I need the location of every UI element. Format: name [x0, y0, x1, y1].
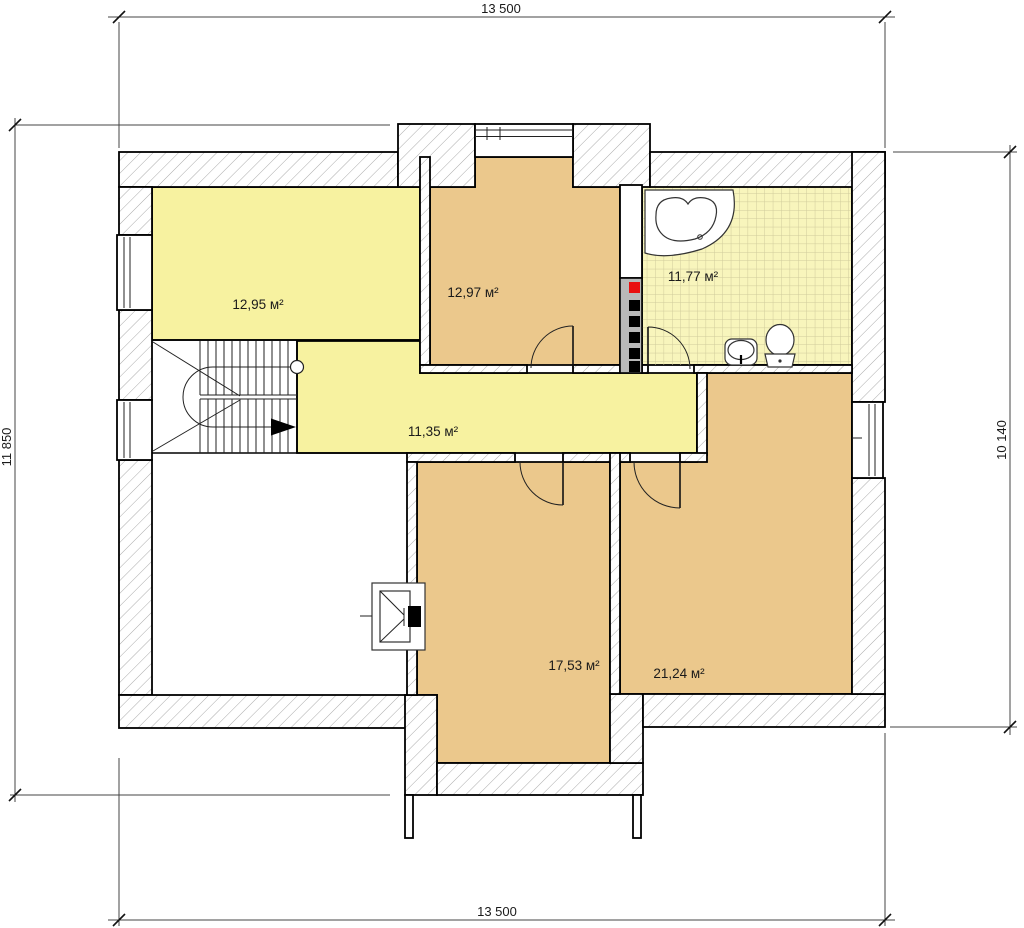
- roof-window-symbol: [360, 583, 425, 650]
- wall-hall-top-left: [420, 365, 527, 373]
- wall-bottom-right: [643, 694, 885, 727]
- dimension-left-value: 11 850: [0, 428, 14, 467]
- wall-bottom-center: [437, 763, 643, 795]
- label-room-bottom-middle: 17,53 м²: [548, 658, 600, 673]
- porch-wall-right: [633, 795, 641, 838]
- wall-storage-right: [407, 462, 417, 695]
- wall-right-2: [852, 478, 885, 694]
- wall-bath-partition: [620, 185, 642, 278]
- dormer-pier-right: [573, 124, 650, 187]
- label-room-top-left: 12,95 м²: [232, 297, 284, 312]
- floor-plan-drawing: 12,95 м² 12,97 м² 11,77 м² 11,35 м² 17,5…: [0, 0, 1024, 928]
- wall-left-3: [119, 460, 152, 695]
- toilet-icon: [765, 325, 795, 368]
- sink-icon: [725, 339, 757, 365]
- label-bathroom: 11,77 м²: [668, 269, 719, 284]
- stair-start-marker: [291, 361, 304, 374]
- wall-bottom-step: [610, 694, 643, 763]
- flue-red-cell: [629, 282, 640, 293]
- left-window-upper: [117, 235, 152, 310]
- porch-walls: [405, 795, 641, 838]
- wall-rooms-12-divider: [420, 157, 430, 365]
- wall-hall-top-right: [573, 365, 620, 373]
- wall-right-1: [852, 152, 885, 402]
- staircase: [153, 341, 304, 453]
- porch-wall-left: [405, 795, 413, 838]
- dimension-right-value: 10 140: [994, 420, 1009, 460]
- room-top-left-floor: [152, 187, 420, 340]
- dimension-bottom-value: 13 500: [477, 904, 517, 919]
- label-hallway: 11,35 м²: [408, 424, 459, 439]
- left-window-lower: [117, 400, 152, 460]
- wall-hall-end: [697, 373, 707, 455]
- floor-plan-page: 12,95 м² 12,97 м² 11,77 м² 11,35 м² 17,5…: [0, 0, 1024, 928]
- wall-bottom-left: [119, 695, 417, 728]
- room-top-middle-floor: [430, 157, 620, 365]
- label-room-bottom-right: 21,24 м²: [653, 666, 705, 681]
- wall-bath-bottom-stub: [642, 365, 648, 373]
- right-window: [852, 402, 883, 478]
- stair-break-line-upper: [153, 342, 240, 396]
- label-room-top-middle: 12,97 м²: [447, 285, 499, 300]
- wall-left-1: [119, 187, 152, 235]
- wall-hall-bottom-1: [407, 453, 515, 462]
- dimension-top-value: 13 500: [481, 1, 521, 16]
- wall-top-right: [650, 152, 885, 187]
- wall-hall-bottom-3: [680, 453, 707, 462]
- chimney-flue: [620, 278, 642, 373]
- wall-top-left: [119, 152, 398, 187]
- stair-direction-arrow: [271, 419, 296, 436]
- wall-bottom-center-left: [405, 695, 437, 795]
- dormer-window: [475, 124, 573, 157]
- wall-left-2: [119, 310, 152, 400]
- stair-break-line-lower: [153, 400, 240, 451]
- wall-bedrooms-divider: [610, 453, 620, 694]
- dimension-right: 10 140: [890, 145, 1017, 735]
- dormer-pier-left: [398, 124, 475, 187]
- room-bottom-middle-floor: [417, 462, 610, 763]
